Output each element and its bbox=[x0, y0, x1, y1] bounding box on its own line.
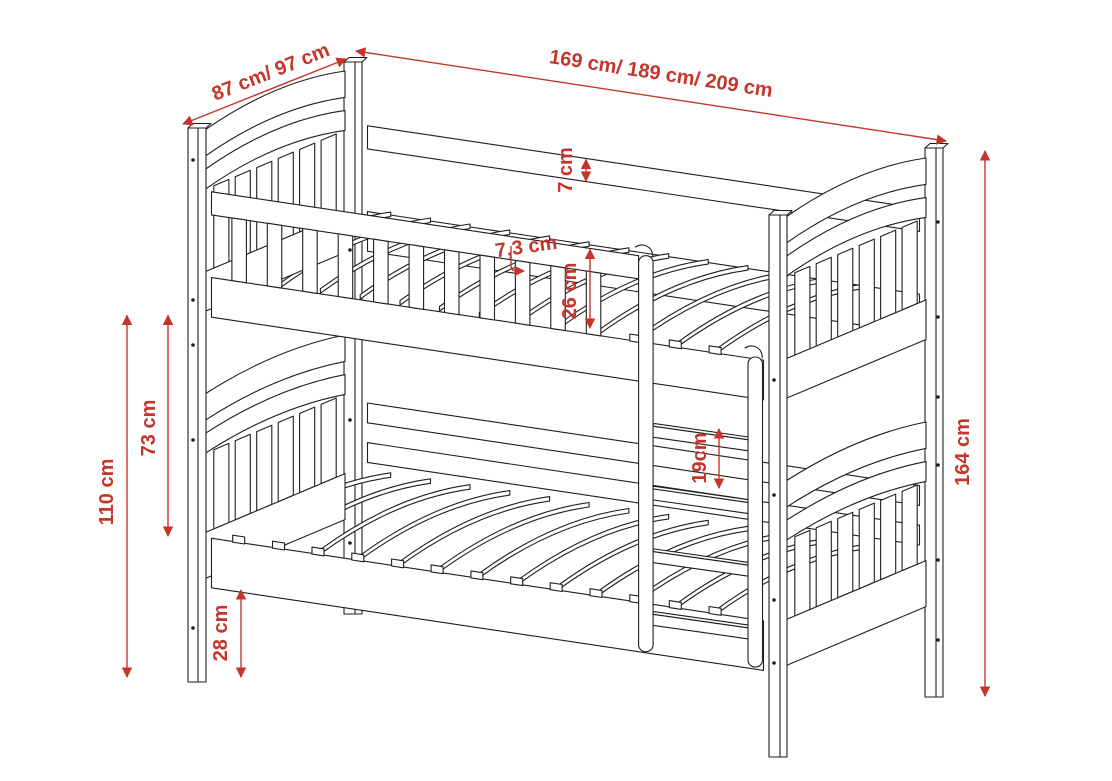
ladder-left-rail bbox=[639, 256, 654, 652]
back-right-post bbox=[925, 144, 948, 698]
dim-label-28cm: 28 cm bbox=[210, 605, 232, 662]
lower-right-headboard bbox=[786, 422, 926, 666]
dim-label-164cm: 164 cm bbox=[952, 418, 974, 486]
dim-label-length: 169 cm/ 189 cm/ 209 cm bbox=[548, 46, 774, 102]
bunk-bed-drawing: 87 cm/ 97 cm 169 cm/ 189 cm/ 209 cm 7 cm… bbox=[0, 0, 1112, 781]
dim-label-73cm: 73 cm bbox=[138, 400, 160, 457]
dim-label-7cm: 7 cm bbox=[555, 147, 577, 193]
dim-label-26cm: 26 cm bbox=[559, 263, 581, 320]
dim-label-19cm: 19cm bbox=[689, 432, 711, 483]
dim-label-110cm: 110 cm bbox=[96, 459, 118, 526]
upper-back-guard-rail bbox=[368, 126, 920, 232]
ladder-right-rail bbox=[748, 357, 763, 667]
bunk-bed-dimension-diagram: 87 cm/ 97 cm 169 cm/ 189 cm/ 209 cm 7 cm… bbox=[0, 0, 1112, 781]
